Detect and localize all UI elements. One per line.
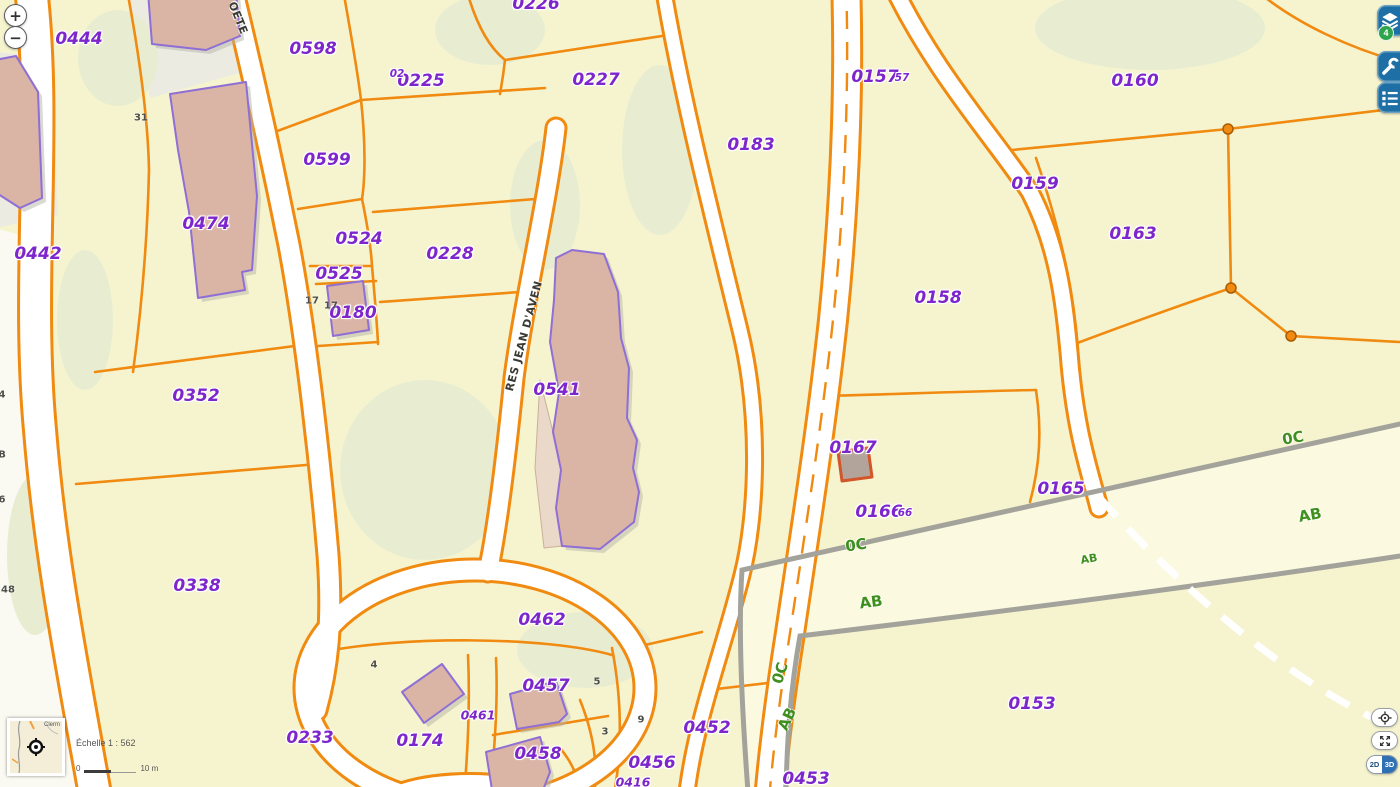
- scale-start-label: 0: [76, 764, 80, 773]
- legend-button[interactable]: [1377, 82, 1400, 113]
- scale-bar-light-segment: [111, 772, 136, 774]
- building-0457: [510, 681, 567, 729]
- scale-end-label: 10 m: [140, 764, 158, 773]
- position-marker-icon: [27, 738, 45, 756]
- layers-count-badge: 4: [1378, 25, 1394, 41]
- scale-bar-dark-segment: [84, 770, 111, 773]
- building-0180: [327, 281, 369, 336]
- list-icon: [1379, 87, 1400, 109]
- building-0458: [486, 737, 550, 787]
- zoom-in-label: +: [9, 7, 22, 25]
- crosshair-icon: [1378, 711, 1392, 725]
- zoom-out-label: −: [9, 29, 22, 47]
- zoom-out-button[interactable]: −: [4, 26, 27, 49]
- boundary-points: [1223, 124, 1296, 341]
- building-0167: [838, 448, 872, 481]
- overview-map-graphics: [10, 721, 62, 773]
- mode-2d-button[interactable]: 2D: [1367, 756, 1382, 773]
- mode-toggle[interactable]: 2D 3D: [1366, 755, 1398, 774]
- overview-place-label: Clerm: [44, 722, 60, 728]
- building-0541: [550, 250, 639, 549]
- tools-button[interactable]: [1377, 51, 1400, 82]
- fullscreen-button[interactable]: [1371, 731, 1398, 750]
- scale-bar-row: 0 10 m: [76, 764, 158, 773]
- map-graphics: [0, 0, 1400, 787]
- fullscreen-icon: [1378, 734, 1392, 748]
- zoom-in-button[interactable]: +: [4, 4, 27, 27]
- overview-map[interactable]: Clerm: [7, 718, 65, 776]
- wrench-icon: [1379, 56, 1400, 78]
- scale-indicator: Échelle 1 : 562: [76, 738, 136, 748]
- layers-count: 4: [1383, 28, 1388, 38]
- scale-text: Échelle 1 : 562: [76, 738, 136, 748]
- scale-bar: [84, 769, 136, 773]
- mode-3d-button[interactable]: 3D: [1382, 756, 1397, 773]
- map-canvas[interactable]: 0444059802250226022705990474052402280525…: [0, 0, 1400, 787]
- section-band: [740, 424, 1400, 787]
- building-0174: [402, 664, 464, 723]
- building-0474: [170, 82, 257, 298]
- locate-button[interactable]: [1371, 708, 1398, 727]
